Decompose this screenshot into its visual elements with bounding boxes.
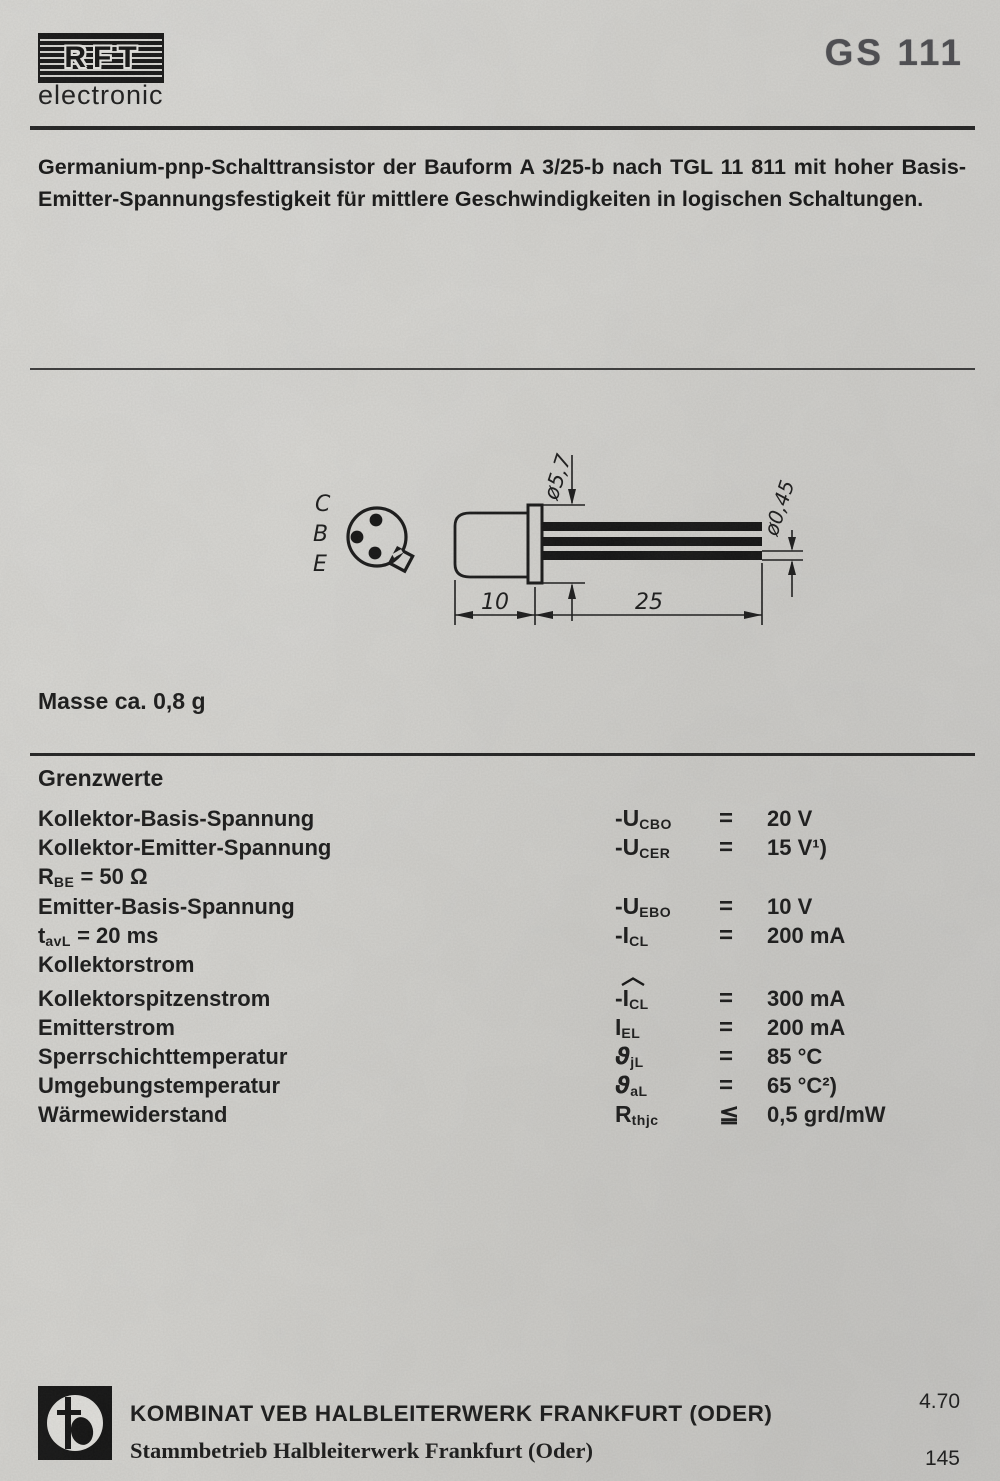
row-label: Wärmewiderstand: [38, 1102, 228, 1127]
pin-dot-c: [370, 514, 383, 527]
row-label: Kollektorstrom: [38, 952, 194, 977]
dim-leads-arrow-left: [535, 611, 553, 619]
row-label: Emitterstrom: [38, 1015, 175, 1040]
lead-bar-middle: [542, 537, 762, 546]
row-value: 15 V¹): [767, 833, 968, 862]
dim-flange-arrow-bottom: [568, 583, 576, 599]
footer-company-line1: KOMBINAT VEB HALBLEITERWERK FRANKFURT (O…: [130, 1401, 772, 1427]
description-paragraph: Germanium-pnp-Schalttransistor der Baufo…: [38, 151, 966, 215]
row-label-rest: = 50 Ω: [74, 864, 147, 889]
case-body-outline: [455, 513, 528, 577]
row-symbol: ϑ: [615, 1044, 630, 1070]
row-label-sub: BE: [54, 874, 74, 890]
row-value: 200 mA: [767, 1013, 968, 1042]
limits-rule: [30, 753, 975, 756]
row-symbol-sub: jL: [630, 1054, 643, 1070]
lead-bar-top: [542, 522, 762, 531]
dim-body-arrow-left: [455, 611, 473, 619]
dim-lead-label: ø0,45: [759, 477, 800, 539]
row-symbol-sub: CBO: [639, 816, 672, 832]
row-symbol-sub: EBO: [639, 904, 671, 920]
row-symbol-sub: CL: [629, 933, 649, 949]
row-relation: ≦: [719, 1100, 767, 1129]
footer-date-code: 4.70: [919, 1390, 960, 1414]
limits-heading: Grenzwerte: [38, 765, 163, 792]
row-value: 200 mA: [767, 921, 968, 950]
row-symbol-sub: CER: [639, 845, 670, 861]
row-symbol: -I: [615, 985, 629, 1011]
row-relation: =: [719, 833, 767, 862]
lead-bar-bottom: [542, 551, 762, 560]
row-relation: =: [719, 1013, 767, 1042]
dim-flange-arrow-top: [568, 489, 576, 505]
description-line-2: Emitter-Spannungsfestigkeit für mittlere…: [38, 183, 966, 215]
table-row: Kollektorspitzenstrom -ICL = 300 mA: [38, 984, 968, 1013]
row-symbol: R: [615, 1101, 632, 1127]
dim-lead-arrow-bottom: [788, 560, 796, 575]
table-row: Kollektor-Basis-Spannung -UCBO = 20 V: [38, 804, 968, 833]
hfo-logo-f-bar: [57, 1410, 81, 1415]
dim-lead-lines: [762, 530, 803, 597]
pin-label-c: C: [315, 492, 331, 517]
pin-dot-e: [369, 547, 382, 560]
row-label: Umgebungstemperatur: [38, 1073, 280, 1098]
row-value: 300 mA: [767, 984, 968, 1013]
peak-hat-icon: [621, 977, 645, 986]
row-value: 20 V: [767, 804, 968, 833]
table-row: Kollektor-Emitter-Spannung -UCER = 15 V¹…: [38, 833, 968, 862]
dim-lead-length-label: 25: [635, 590, 663, 615]
pin-label-b: B: [313, 522, 328, 547]
row-value: 10 V: [767, 892, 968, 921]
row-relation: =: [719, 984, 767, 1013]
row-value: 65 °C²): [767, 1071, 968, 1100]
part-number: GS 111: [825, 32, 964, 74]
row-label-sub: avL: [45, 933, 71, 949]
pin-label-e: E: [313, 552, 327, 577]
dim-leads-arrow-right: [744, 611, 762, 619]
row-label: Sperrschichttemperatur: [38, 1044, 287, 1069]
row-symbol-sub: aL: [630, 1083, 647, 1099]
mass-note: Masse ca. 0,8 g: [38, 688, 206, 715]
side-view: [455, 505, 762, 583]
section-rule: [30, 368, 975, 370]
row-symbol-sub: CL: [629, 996, 649, 1012]
table-row: tavL = 20 ms -ICL = 200 mA: [38, 921, 968, 950]
brand-subtitle: electronic: [38, 80, 164, 111]
table-row: RBE = 50 Ω: [38, 862, 968, 891]
row-relation: =: [719, 892, 767, 921]
dim-lead-arrow-top: [788, 537, 796, 551]
row-relation: =: [719, 804, 767, 833]
dim-body-length-label: 10: [481, 590, 509, 615]
table-row: Wärmewiderstand Rthjc ≦ 0,5 grd/mW: [38, 1100, 968, 1129]
description-line-1: Germanium-pnp-Schalttransistor der Baufo…: [38, 151, 966, 183]
table-row: Sperrschichttemperatur ϑjL = 85 °C: [38, 1042, 968, 1071]
row-symbol: -I: [615, 922, 629, 948]
row-symbol: -U: [615, 834, 639, 860]
rft-logo-text: RFT: [58, 41, 143, 75]
dim-body-arrow-right: [517, 611, 535, 619]
row-symbol: -U: [615, 893, 639, 919]
pin-dot-b: [351, 531, 364, 544]
row-value: 0,5 grd/mW: [767, 1100, 968, 1129]
table-row: Emitterstrom IEL = 200 mA: [38, 1013, 968, 1042]
rft-logo: RFT: [38, 33, 164, 83]
pin-view: [348, 508, 413, 571]
header-rule: [30, 126, 975, 130]
paper-texture-overlay: [0, 0, 1000, 1481]
row-symbol: -U: [615, 805, 639, 831]
row-symbol: ϑ: [615, 1073, 630, 1099]
row-label: Kollektor-Basis-Spannung: [38, 806, 314, 831]
datasheet-page: RFT electronic GS 111 Germanium-pnp-Scha…: [0, 0, 1000, 1481]
row-symbol-sub: thjc: [632, 1112, 659, 1128]
row-label: Kollektor-Emitter-Spannung: [38, 835, 331, 860]
footer-page-number: 145: [925, 1447, 960, 1471]
row-relation: =: [719, 1042, 767, 1071]
row-label: R: [38, 864, 54, 889]
case-flange: [528, 505, 542, 583]
row-value: 85 °C: [767, 1042, 968, 1071]
row-relation: =: [719, 921, 767, 950]
limits-table: Kollektor-Basis-Spannung -UCBO = 20 V Ko…: [38, 804, 968, 1129]
technical-drawing: C B E ø5,7: [285, 425, 850, 665]
row-label-rest: = 20 ms: [71, 923, 158, 948]
row-relation: =: [719, 1071, 767, 1100]
table-row: Emitter-Basis-Spannung -UEBO = 10 V: [38, 892, 968, 921]
footer-company-line2: Stammbetrieb Halbleiterwerk Frankfurt (O…: [130, 1438, 593, 1464]
hfo-logo-f-stem: [65, 1397, 71, 1449]
table-row: Kollektorstrom: [38, 950, 968, 979]
row-label: Kollektorspitzenstrom: [38, 986, 270, 1011]
row-symbol-sub: EL: [621, 1025, 640, 1041]
row-label: Emitter-Basis-Spannung: [38, 894, 295, 919]
hfo-logo: [38, 1386, 112, 1460]
table-row: Umgebungstemperatur ϑaL = 65 °C²): [38, 1071, 968, 1100]
